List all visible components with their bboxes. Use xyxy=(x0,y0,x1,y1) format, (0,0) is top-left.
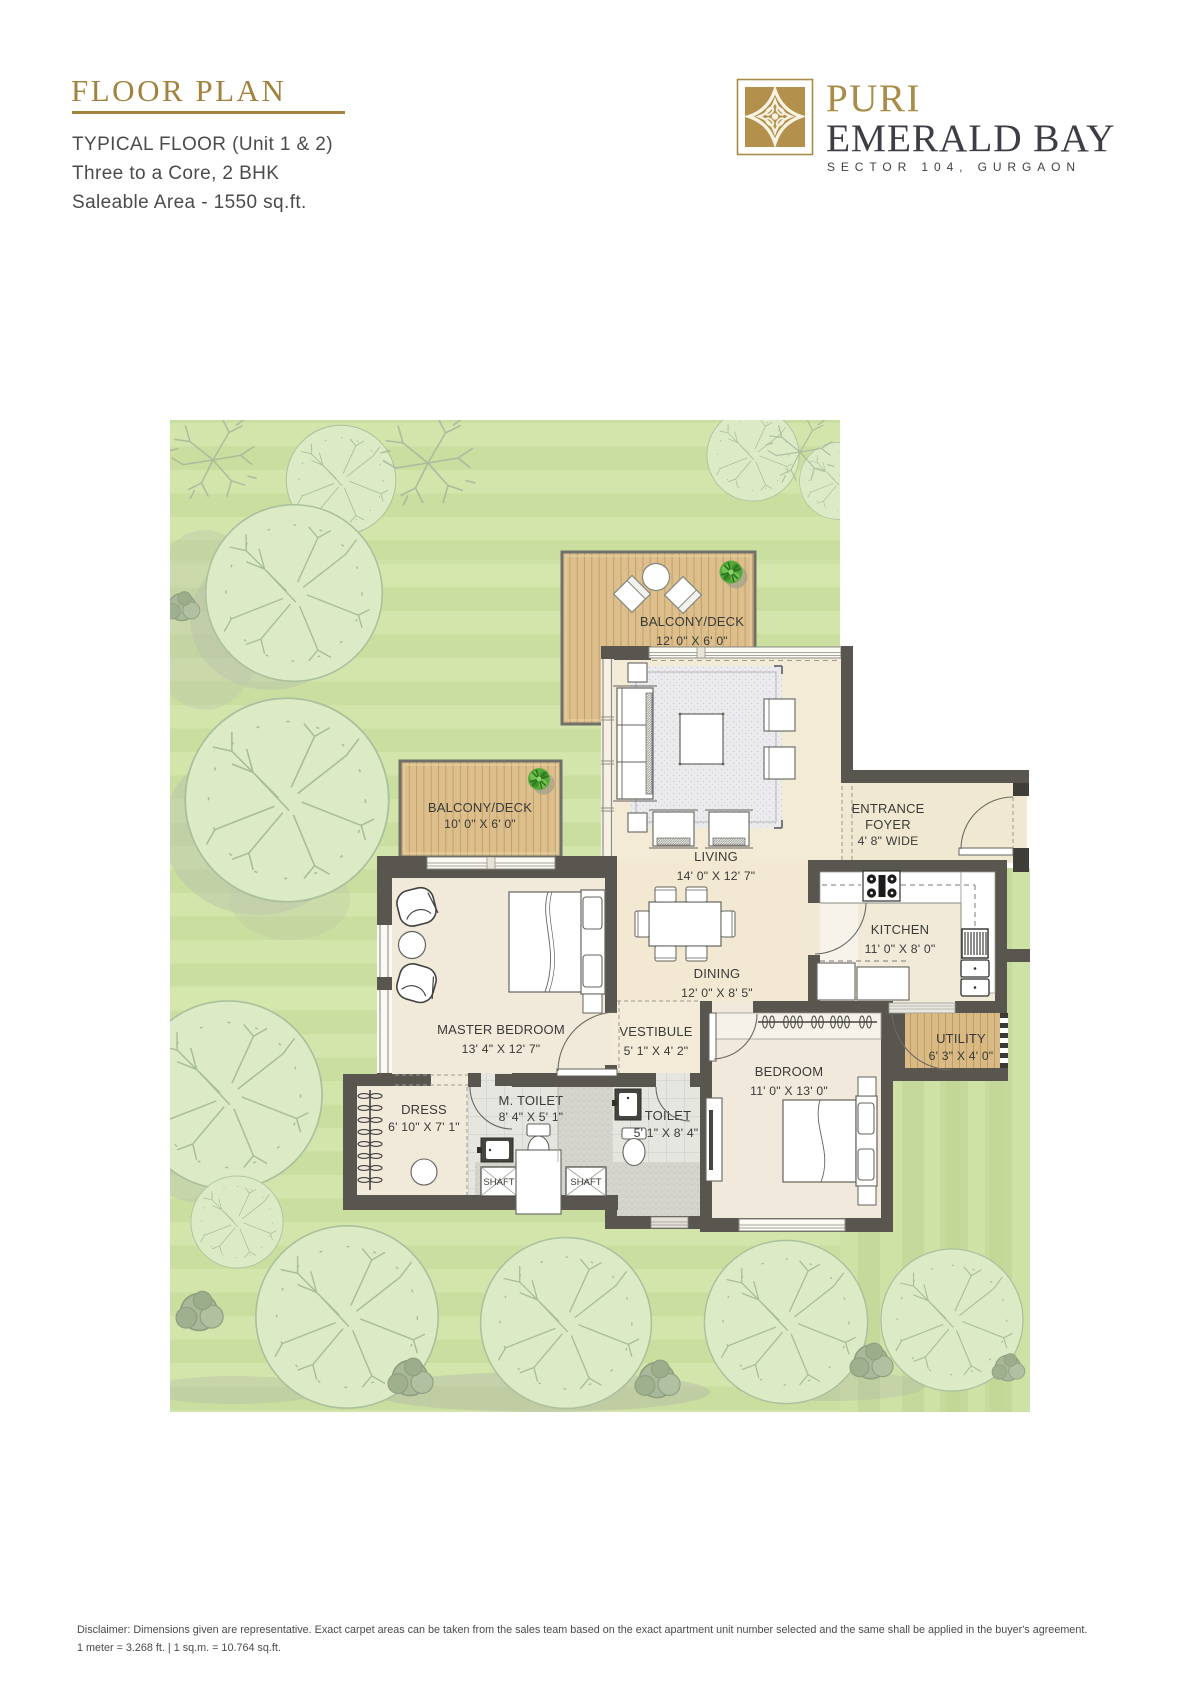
svg-text:6' 10" X 7' 1": 6' 10" X 7' 1" xyxy=(388,1120,460,1134)
svg-text:FLOOR PLAN: FLOOR PLAN xyxy=(71,73,286,108)
svg-text:ENTRANCE: ENTRANCE xyxy=(851,801,924,816)
svg-text:SHAFT: SHAFT xyxy=(483,1177,514,1188)
svg-text:10' 0" X 6' 0": 10' 0" X 6' 0" xyxy=(444,817,516,831)
svg-text:BALCONY/DECK: BALCONY/DECK xyxy=(428,800,532,815)
svg-text:BALCONY/DECK: BALCONY/DECK xyxy=(640,614,744,629)
svg-text:LIVING: LIVING xyxy=(694,849,738,864)
svg-text:SECTOR 104, GURGAON: SECTOR 104, GURGAON xyxy=(827,160,1081,174)
svg-text:4' 8" WIDE: 4' 8" WIDE xyxy=(858,834,919,848)
svg-text:6' 3" X 4' 0": 6' 3" X 4' 0" xyxy=(929,1049,994,1063)
svg-text:KITCHEN: KITCHEN xyxy=(871,922,929,937)
svg-text:14' 0" X 12' 7": 14' 0" X 12' 7" xyxy=(677,869,756,883)
svg-text:13' 4" X 12' 7": 13' 4" X 12' 7" xyxy=(462,1042,541,1056)
svg-text:DRESS: DRESS xyxy=(401,1102,447,1117)
svg-text:PURI: PURI xyxy=(826,77,921,120)
svg-text:Three to a Core, 2 BHK: Three to a Core, 2 BHK xyxy=(72,163,279,184)
svg-text:5' 1" X 8' 4": 5' 1" X 8' 4" xyxy=(634,1126,699,1140)
svg-text:Disclaimer: Dimensions given a: Disclaimer: Dimensions given are represe… xyxy=(77,1624,1087,1636)
svg-text:SHAFT: SHAFT xyxy=(570,1177,601,1188)
svg-text:Saleable Area - 1550 sq.ft.: Saleable Area - 1550 sq.ft. xyxy=(72,192,307,213)
svg-text:1 meter = 3.268 ft. | 1 sq.m: 1 meter = 3.268 ft. | 1 sq.m. = 10.764 s… xyxy=(77,1642,281,1654)
svg-text:BEDROOM: BEDROOM xyxy=(755,1064,824,1079)
svg-text:5' 1" X 4' 2": 5' 1" X 4' 2" xyxy=(624,1044,689,1058)
svg-text:12' 0" X 6' 0": 12' 0" X 6' 0" xyxy=(656,634,728,648)
svg-text:MASTER BEDROOM: MASTER BEDROOM xyxy=(437,1022,565,1037)
svg-text:8' 4" X 5' 1": 8' 4" X 5' 1" xyxy=(499,1110,564,1124)
svg-text:EMERALD BAY: EMERALD BAY xyxy=(826,116,1115,160)
svg-text:11' 0" X 13' 0": 11' 0" X 13' 0" xyxy=(750,1084,828,1098)
svg-text:12' 0" X 8' 5": 12' 0" X 8' 5" xyxy=(681,986,753,1000)
svg-text:UTILITY: UTILITY xyxy=(936,1031,986,1046)
svg-text:FOYER: FOYER xyxy=(865,817,911,832)
svg-text:TYPICAL FLOOR (Unit 1 & 2): TYPICAL FLOOR (Unit 1 & 2) xyxy=(72,134,333,155)
svg-text:11' 0" X 8' 0": 11' 0" X 8' 0" xyxy=(865,942,936,956)
svg-text:M. TOILET: M. TOILET xyxy=(499,1093,564,1108)
svg-text:DINING: DINING xyxy=(694,966,741,981)
svg-text:VESTIBULE: VESTIBULE xyxy=(619,1024,692,1039)
